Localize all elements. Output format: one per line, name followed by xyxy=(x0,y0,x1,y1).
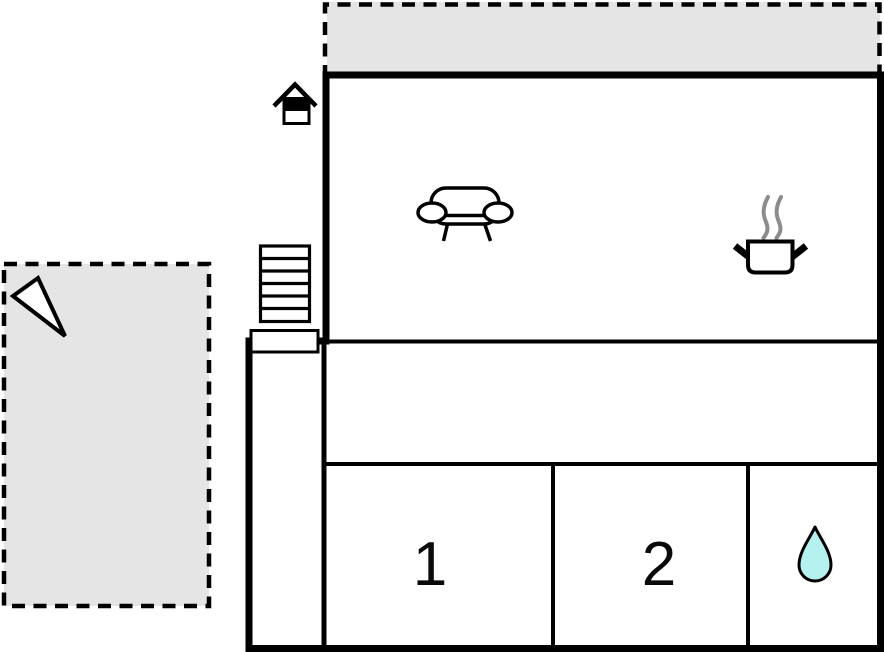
bedroom-2-label: 2 xyxy=(642,530,676,599)
floor-plan-canvas: 1 2 xyxy=(0,0,884,652)
terrace-top-fill xyxy=(327,2,880,76)
house-annex-icon xyxy=(274,85,316,124)
sofa-armrest-right xyxy=(484,203,512,222)
sofa-armrest-left xyxy=(418,203,446,222)
stairs-icon xyxy=(261,246,310,322)
terrace-left-fill xyxy=(4,264,209,606)
terrace-left xyxy=(4,264,209,606)
terrace-top xyxy=(325,2,880,78)
pot-body xyxy=(748,242,793,273)
entrance-landing xyxy=(251,331,318,353)
building-outer-wall xyxy=(249,75,881,649)
bedroom-1-label: 1 xyxy=(413,530,447,599)
floor-plan-drawing: 1 2 xyxy=(0,0,884,652)
